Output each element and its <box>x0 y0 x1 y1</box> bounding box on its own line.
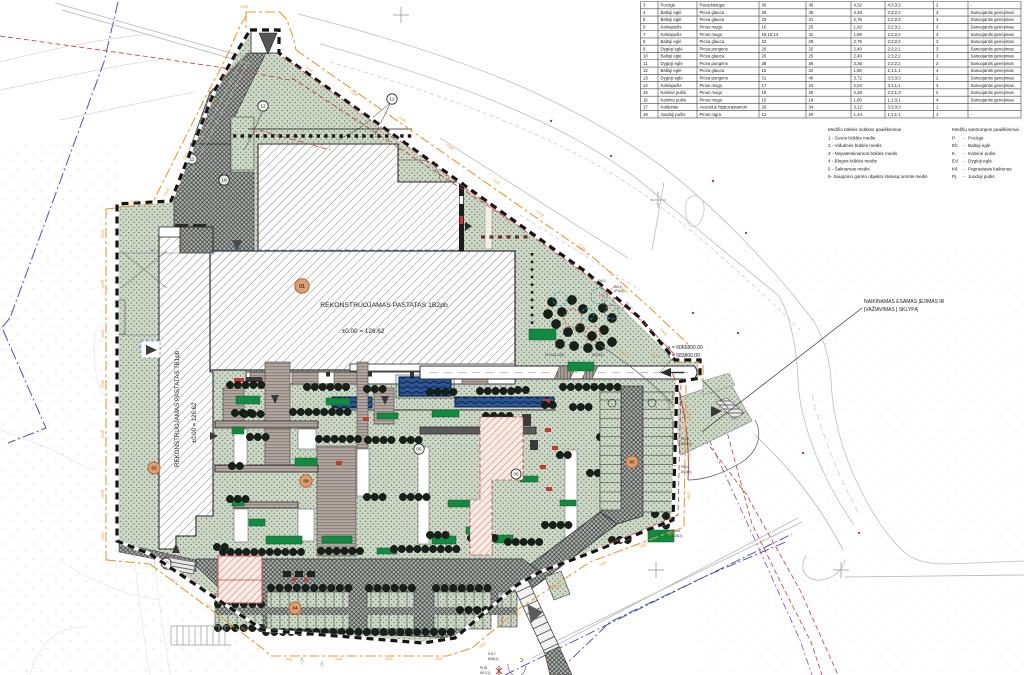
svg-text:OVR: OVR <box>101 280 105 288</box>
svg-text:Sanuojantis genėjimas: Sanuojantis genėjimas <box>971 39 1014 44</box>
svg-text:Baltoji eglė: Baltoji eglė <box>968 143 991 148</box>
svg-text:Picea glauca: Picea glauca <box>700 54 725 59</box>
svg-text:OVR: OVR <box>101 430 105 438</box>
svg-text:Pk14: Pk14 <box>681 437 689 441</box>
svg-text:P: P <box>952 136 955 141</box>
svg-text:18: 18 <box>643 112 648 117</box>
svg-text:2;2;3;2: 2;2;3;2 <box>888 25 902 30</box>
svg-text:Pseudotsuga: Pseudotsuga <box>700 3 726 8</box>
svg-text:Kalninė pušis: Kalninė pušis <box>968 151 996 156</box>
svg-text:Pocūgė: Pocūgė <box>968 136 984 141</box>
svg-text:Dygioji eglė: Dygioji eglė <box>661 75 684 80</box>
svg-text:VAD: VAD <box>687 492 691 500</box>
svg-text:Ø12(3): Ø12(3) <box>681 442 692 446</box>
svg-text:2,76: 2,76 <box>854 39 863 44</box>
svg-text:3,36: 3,36 <box>854 61 863 66</box>
svg-text:14: 14 <box>643 83 648 88</box>
svg-text:Dygioji eglė: Dygioji eglė <box>661 46 684 51</box>
svg-text:Juodoji pušis: Juodoji pušis <box>661 112 686 117</box>
svg-text:20: 20 <box>762 54 767 59</box>
svg-text:16: 16 <box>762 25 767 30</box>
svg-text:Kš: Kš <box>952 166 958 171</box>
svg-text:31: 31 <box>762 75 767 80</box>
svg-text:y = 583800.00: y = 583800.00 <box>668 353 700 359</box>
svg-text:2 - Vidutinės būklės medis: 2 - Vidutinės būklės medis <box>828 143 882 148</box>
svg-text:2;2;1;3: 2;2;1;3 <box>888 90 902 95</box>
svg-text:Baltoji eglė: Baltoji eglė <box>661 10 683 15</box>
svg-text:2;2;2;2: 2;2;2;2 <box>888 32 902 37</box>
svg-text:Pk55: Pk55 <box>672 529 680 533</box>
svg-text:25: 25 <box>809 25 814 30</box>
svg-text:VAD: VAD <box>385 657 393 661</box>
svg-text:24: 24 <box>809 83 814 88</box>
svg-text:Picea pungens: Picea pungens <box>700 46 728 51</box>
svg-text:Picea glauca: Picea glauca <box>700 10 725 15</box>
svg-text:3;1;1;1: 3;1;1;1 <box>888 83 902 88</box>
svg-text:VAD: VAD <box>687 412 691 420</box>
svg-text:29: 29 <box>762 10 767 15</box>
svg-text:Ø26(2): Ø26(2) <box>672 534 683 538</box>
svg-text:04: 04 <box>292 606 298 612</box>
svg-text:Pinus nigra: Pinus nigra <box>700 112 722 117</box>
svg-text:(P14,15,14(3): (P14,15,14(3) <box>545 353 565 357</box>
svg-text:1,44: 1,44 <box>854 112 863 117</box>
svg-text:Baltoji eglė: Baltoji eglė <box>661 39 683 44</box>
svg-text:6- Saugomo gamto objekto statu: 6- Saugomo gamto objekto statusą turinti… <box>828 174 928 179</box>
svg-text:Medžių santrumpos paaiškinimai: Medžių santrumpos paaiškinimai <box>952 127 1019 132</box>
svg-text:Baltoji eglė: Baltoji eglė <box>661 68 683 73</box>
svg-text:Dygioji eglė: Dygioji eglė <box>661 61 684 66</box>
svg-text:36: 36 <box>809 61 814 66</box>
svg-text:45: 45 <box>809 3 814 8</box>
svg-text:2;2;2;1: 2;2;2;1 <box>888 46 902 51</box>
svg-text:Pinus mugo: Pinus mugo <box>700 97 723 102</box>
svg-text:16;15;14: 16;15;14 <box>762 32 779 37</box>
svg-text:12: 12 <box>762 112 767 117</box>
svg-text:3,72: 3,72 <box>854 75 863 80</box>
svg-text:Sanuojantis genėjimas: Sanuojantis genėjimas <box>971 46 1014 51</box>
svg-text:P(18: P(18 <box>480 666 487 670</box>
svg-text:Sanuojantis genėjimas: Sanuojantis genėjimas <box>971 17 1014 22</box>
svg-text:12: 12 <box>389 97 395 103</box>
svg-text:02: 02 <box>151 466 157 472</box>
svg-text:Kaštonas: Kaštonas <box>661 105 679 110</box>
svg-text:05: 05 <box>629 460 635 466</box>
svg-text:13: 13 <box>643 75 648 80</box>
svg-text:5 - Šalinamas medis: 5 - Šalinamas medis <box>828 165 870 171</box>
svg-text:3;3;3;3: 3;3;3;3 <box>888 75 902 80</box>
svg-text:3;3;3;3: 3;3;3;3 <box>888 105 902 110</box>
svg-text:2,28: 2,28 <box>854 90 863 95</box>
svg-text:REKONSTRUOJAMAS PASTATAS 1B2pb: REKONSTRUOJAMAS PASTATAS 1B2pb <box>320 302 448 309</box>
svg-text:Dygioji eglė: Dygioji eglė <box>968 159 992 164</box>
svg-text:Ↄ: Ↄ <box>520 658 524 664</box>
svg-text:Sanuojantis genėjimas: Sanuojantis genėjimas <box>971 54 1014 59</box>
svg-text:40: 40 <box>809 75 814 80</box>
svg-text:25: 25 <box>809 46 814 51</box>
svg-text:15: 15 <box>643 90 648 95</box>
svg-text:2,76: 2,76 <box>854 17 863 22</box>
svg-text:4;3;3;3: 4;3;3;3 <box>888 3 902 8</box>
svg-text:Pocūgė: Pocūgė <box>661 3 676 8</box>
svg-text:Pj: Pj <box>952 174 956 179</box>
svg-text:1,80: 1,80 <box>854 32 863 37</box>
svg-text:Pinus mugo: Pinus mugo <box>700 25 723 30</box>
svg-text:Pinus mugo: Pinus mugo <box>700 83 723 88</box>
svg-text:Baltoji eglė: Baltoji eglė <box>661 54 683 59</box>
svg-text:11: 11 <box>190 157 195 163</box>
svg-text:15: 15 <box>762 68 767 73</box>
svg-text:Ø26(1): Ø26(1) <box>488 657 499 661</box>
svg-text:17: 17 <box>762 83 767 88</box>
svg-text:32: 32 <box>809 32 814 37</box>
svg-text:Kalnapušis: Kalnapušis <box>661 32 682 37</box>
svg-text:Sanuojantis genėjimas: Sanuojantis genėjimas <box>971 68 1014 73</box>
svg-text:Ed: Ed <box>952 159 958 164</box>
svg-text:1,80: 1,80 <box>854 68 863 73</box>
svg-text:Paprastasis kaštonas: Paprastasis kaštonas <box>968 166 1012 171</box>
svg-text:01: 01 <box>299 284 305 290</box>
svg-text:VAD: VAD <box>435 657 443 661</box>
svg-text:±0.00 = 126.62: ±0.00 = 126.62 <box>192 402 198 443</box>
svg-text:20: 20 <box>762 46 767 51</box>
svg-text:12: 12 <box>643 68 648 73</box>
svg-text:3;3;2;2: 3;3;2;2 <box>888 10 902 15</box>
svg-text:2;2;2;2: 2;2;2;2 <box>888 17 902 22</box>
svg-text:OVR: OVR <box>101 490 105 498</box>
svg-text:Sanuojantis genėjimas: Sanuojantis genėjimas <box>971 32 1014 37</box>
svg-text:Pinus mugo: Pinus mugo <box>700 90 723 95</box>
svg-text:OVR: OVR <box>130 200 138 204</box>
svg-text:22: 22 <box>809 68 814 73</box>
svg-text:1,92: 1,92 <box>854 25 863 30</box>
svg-text:2,04: 2,04 <box>854 83 863 88</box>
svg-text:Ø15(4): Ø15(4) <box>681 470 692 474</box>
svg-text:35: 35 <box>809 10 814 15</box>
svg-text:34: 34 <box>809 105 814 110</box>
svg-text:Ø17(1): Ø17(1) <box>480 671 491 675</box>
svg-text:17: 17 <box>643 105 648 110</box>
svg-text:1;1;1;1: 1;1;1;1 <box>888 112 902 117</box>
svg-text:12: 12 <box>260 104 266 110</box>
svg-text:10: 10 <box>643 54 648 59</box>
svg-text:11: 11 <box>643 61 648 66</box>
svg-text:Picea glauca: Picea glauca <box>700 68 725 73</box>
svg-text:3,48: 3,48 <box>854 10 863 15</box>
svg-text:18: 18 <box>221 178 227 184</box>
svg-text:3,12: 3,12 <box>854 105 863 110</box>
svg-text:Juodoji pušis: Juodoji pušis <box>968 174 995 179</box>
svg-text:Kalnapušis: Kalnapušis <box>661 25 682 30</box>
svg-text:Sanuojantis genėjimas: Sanuojantis genėjimas <box>971 10 1014 15</box>
svg-text:1;1;1;1: 1;1;1;1 <box>888 68 902 73</box>
svg-text:25: 25 <box>809 54 814 59</box>
svg-text:06: 06 <box>416 447 422 453</box>
svg-text:ĮVAŽIAVIMAS Į SKLYPĄ: ĮVAŽIAVIMAS Į SKLYPĄ <box>864 305 919 313</box>
svg-text:Sanuojantis genėjimas: Sanuojantis genėjimas <box>971 25 1014 30</box>
svg-text:Sanuojantis genėjimas: Sanuojantis genėjimas <box>971 61 1014 66</box>
svg-text:Kalninė pušis: Kalninė pušis <box>661 90 687 95</box>
svg-text:Kalninė pušis: Kalninė pušis <box>661 97 687 102</box>
svg-text:OVR: OVR <box>101 532 105 540</box>
svg-text:Baltoji eglė: Baltoji eglė <box>661 17 683 22</box>
svg-text:28: 28 <box>762 61 767 66</box>
svg-text:15: 15 <box>762 97 767 102</box>
svg-text:(P(20(1): (P(20(1) <box>592 353 604 357</box>
svg-text:REKONSTRUOJAMAS PASTATAS 7B1pb: REKONSTRUOJAMAS PASTATAS 7B1pb <box>174 350 181 467</box>
svg-text:2;3;2;2: 2;3;2;2 <box>888 54 902 59</box>
svg-text:16: 16 <box>643 97 648 102</box>
svg-text:OVR: OVR <box>651 354 659 358</box>
svg-text:06: 06 <box>514 472 519 477</box>
svg-text:2,40: 2,40 <box>854 54 863 59</box>
svg-text:19: 19 <box>762 90 767 95</box>
svg-text:Sanuojantis genėjimas: Sanuojantis genėjimas <box>971 83 1014 88</box>
svg-text:26: 26 <box>762 105 767 110</box>
svg-text:25: 25 <box>809 90 814 95</box>
svg-text:NAIKINAMAS ESAMAS ĮĖJIMAS IR: NAIKINAMAS ESAMAS ĮĖJIMAS IR <box>864 298 945 305</box>
svg-text:Picea glauca: Picea glauca <box>700 17 725 22</box>
svg-text:18: 18 <box>809 97 814 102</box>
svg-text:OVR: OVR <box>101 230 105 238</box>
svg-text:OVR: OVR <box>101 330 105 338</box>
svg-text:Picea pungens: Picea pungens <box>700 75 728 80</box>
svg-text:Picea pungens: Picea pungens <box>700 61 728 66</box>
svg-text:09: 09 <box>303 479 309 485</box>
svg-text:23: 23 <box>762 17 767 22</box>
svg-text:x = 6065800.00: x = 6065800.00 <box>668 345 703 351</box>
svg-text:±0.00 = 126.62: ±0.00 = 126.62 <box>342 328 385 335</box>
svg-text:Aesculus hippocastanum: Aesculus hippocastanum <box>700 105 748 110</box>
svg-text:OVR: OVR <box>101 380 105 388</box>
svg-text:2,40: 2,40 <box>854 46 863 51</box>
svg-text:23: 23 <box>762 39 767 44</box>
svg-text:Picea glauca: Picea glauca <box>700 39 725 44</box>
svg-text:1,80: 1,80 <box>854 97 863 102</box>
svg-text:4,32: 4,32 <box>854 3 863 8</box>
svg-text:Pk14: Pk14 <box>681 465 689 469</box>
svg-text:Medžio būklės indekso paaiškin: Medžio būklės indekso paaiškinimai <box>828 127 901 132</box>
svg-text:Eb: Eb <box>952 143 958 148</box>
svg-text:Kalnapušis: Kalnapušis <box>661 83 682 88</box>
svg-text:Sanuojantis genėjimas: Sanuojantis genėjimas <box>971 97 1014 102</box>
svg-text:2;2;2;2: 2;2;2;2 <box>888 39 902 44</box>
svg-text:Sanuojantis genėjimas: Sanuojantis genėjimas <box>971 75 1014 80</box>
svg-text:20: 20 <box>809 112 814 117</box>
svg-text:31: 31 <box>809 17 814 22</box>
svg-text:3 - Nepatenkinamos būklės medi: 3 - Nepatenkinamos būklės medis <box>828 151 898 156</box>
svg-text:Pinus mugo: Pinus mugo <box>700 32 723 37</box>
svg-text:Sanuojantis genėjimas: Sanuojantis genėjimas <box>971 90 1014 95</box>
svg-text:29: 29 <box>809 39 814 44</box>
svg-text:4 - Blogos būklės medis: 4 - Blogos būklės medis <box>828 159 877 164</box>
svg-text:2;2;2;2: 2;2;2;2 <box>888 61 902 66</box>
svg-text:36: 36 <box>762 3 767 8</box>
svg-text:VAD: VAD <box>687 452 691 460</box>
svg-text:VAD: VAD <box>335 657 343 661</box>
svg-text:OVR: OVR <box>240 5 248 9</box>
svg-text:1 - Geros būklės medis: 1 - Geros būklės medis <box>828 136 876 141</box>
svg-text:K117: K117 <box>488 652 496 656</box>
svg-text:1;1;3;1: 1;1;3;1 <box>888 97 902 102</box>
